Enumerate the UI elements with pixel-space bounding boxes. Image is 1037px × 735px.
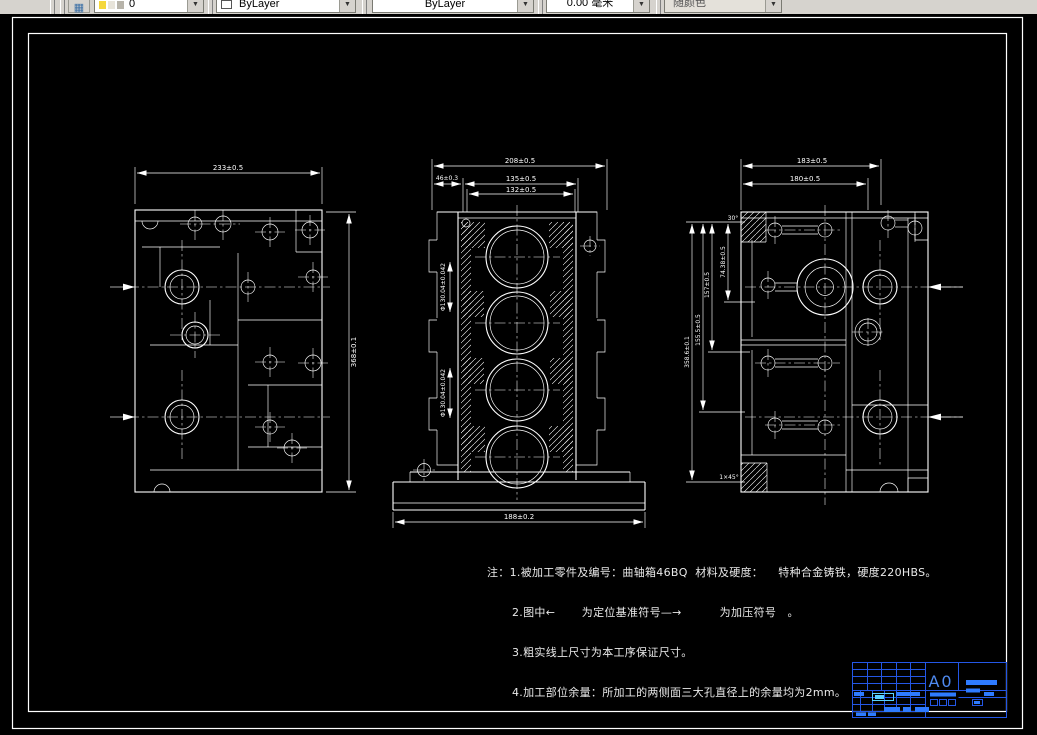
dim-label: 135±0.5 [506, 175, 536, 183]
note-line-2: 2.图中← 为定位基准符号—→ 为加压符号 。 [487, 606, 937, 619]
lineweight-dropdown[interactable]: 0.00 毫米 ▼ [546, 0, 650, 13]
color-dropdown[interactable]: ByLayer ▼ [216, 0, 356, 13]
dim-label: 358.6±0.1 [684, 336, 691, 368]
datum-arrow [928, 284, 963, 421]
chevron-down-icon: ▼ [517, 0, 533, 12]
layers-icon: ▦ [74, 2, 84, 14]
layers-button[interactable]: ▦ [68, 0, 90, 13]
layer-value: 0 [129, 0, 135, 10]
object-properties-toolbar: ▦ 0 ▼ ByLayer ▼ ByLayer ▼ 0.00 毫米 ▼ 随颜色 … [0, 0, 1037, 14]
dim-label: 233±0.5 [213, 164, 243, 172]
bulb-icon [99, 1, 106, 9]
layer-state-icons [99, 1, 124, 9]
chevron-down-icon: ▼ [633, 0, 649, 12]
angle-note: 30° [728, 215, 739, 222]
dim-label: 155.5±0.5 [695, 314, 702, 346]
toolbar-grip[interactable] [60, 0, 65, 14]
toolbar-grip[interactable] [656, 0, 661, 14]
color-value: ByLayer [239, 0, 279, 10]
dim-label: 180±0.5 [790, 175, 820, 183]
sun-icon [108, 1, 115, 9]
plotstyle-dropdown[interactable]: 随颜色 ▼ [664, 0, 782, 13]
dim-label: Φ130.04±0.042 [440, 369, 447, 417]
chevron-down-icon: ▼ [187, 0, 203, 12]
dim-label: 74.38±0.5 [720, 246, 727, 278]
dim-label: 46±0.3 [436, 175, 458, 182]
note-line-4: 4.加工部位余量：所加工的两侧面三大孔直径上的余量均为2mm。 [487, 686, 937, 699]
datum-arrow [110, 284, 135, 421]
toolbar-grip[interactable] [538, 0, 543, 14]
dim-label: 132±0.5 [506, 186, 536, 194]
chamfer-note: 1×45° [719, 474, 738, 481]
dim-label: 368±0.1 [350, 337, 358, 367]
toolbar-grip[interactable] [50, 0, 55, 14]
lock-icon [117, 1, 124, 9]
dim-label: 208±0.5 [505, 157, 535, 165]
toolbar-grip[interactable] [362, 0, 367, 14]
view-middle: 208±0.5 135±0.5 132±0.5 46±0.3 188±0.2 [393, 157, 645, 528]
view-left: 233±0.5 368±0.1 [110, 164, 358, 492]
note-line-1: 注：1.被加工零件及编号：曲轴箱46BQ 材料及硬度： 特种合金铸铁，硬度220… [487, 566, 937, 579]
dim-label: 183±0.5 [797, 157, 827, 165]
view-right: 183±0.5 180±0.5 358.6±0.1 155.5±0.5 157±… [684, 157, 963, 505]
dim-label: 188±0.2 [504, 513, 534, 521]
chevron-down-icon: ▼ [765, 0, 781, 12]
lineweight-value: 0.00 毫米 [547, 0, 633, 10]
chevron-down-icon: ▼ [339, 0, 355, 12]
layer-dropdown[interactable]: 0 ▼ [94, 0, 204, 13]
toolbar-grip[interactable] [208, 0, 213, 14]
linetype-value: ByLayer [373, 0, 517, 10]
dim-label: 157±0.5 [704, 272, 711, 298]
color-chip-icon [221, 0, 232, 9]
dim-label: Φ130.04±0.042 [440, 263, 447, 311]
note-line-3: 3.粗实线上尺寸为本工序保证尺寸。 [487, 646, 937, 659]
plotstyle-value: 随颜色 [673, 0, 706, 10]
linetype-dropdown[interactable]: ByLayer ▼ [372, 0, 534, 13]
process-notes: 注：1.被加工零件及编号：曲轴箱46BQ 材料及硬度： 特种合金铸铁，硬度220… [487, 539, 937, 713]
